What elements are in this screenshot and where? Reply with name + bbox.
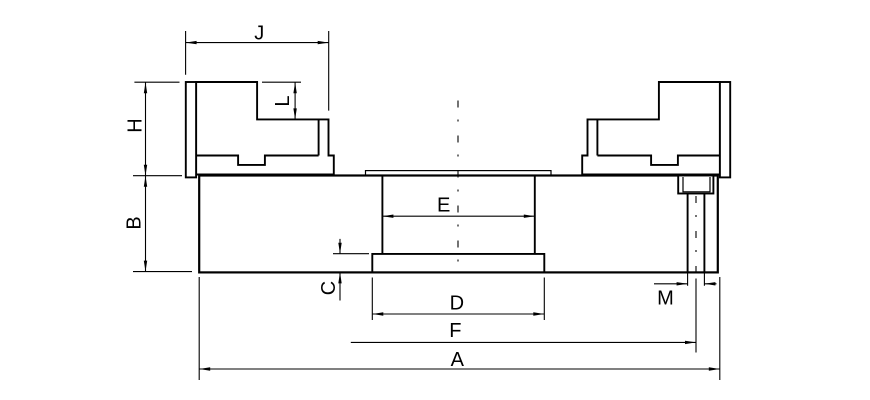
svg-text:A: A <box>451 349 465 371</box>
svg-text:B: B <box>123 216 145 229</box>
svg-text:H: H <box>124 118 146 132</box>
svg-text:F: F <box>449 320 461 342</box>
svg-text:J: J <box>254 23 264 45</box>
svg-text:D: D <box>450 293 464 315</box>
svg-text:E: E <box>437 195 450 217</box>
svg-text:L: L <box>272 95 294 106</box>
svg-text:M: M <box>657 288 674 310</box>
svg-text:C: C <box>318 281 340 295</box>
